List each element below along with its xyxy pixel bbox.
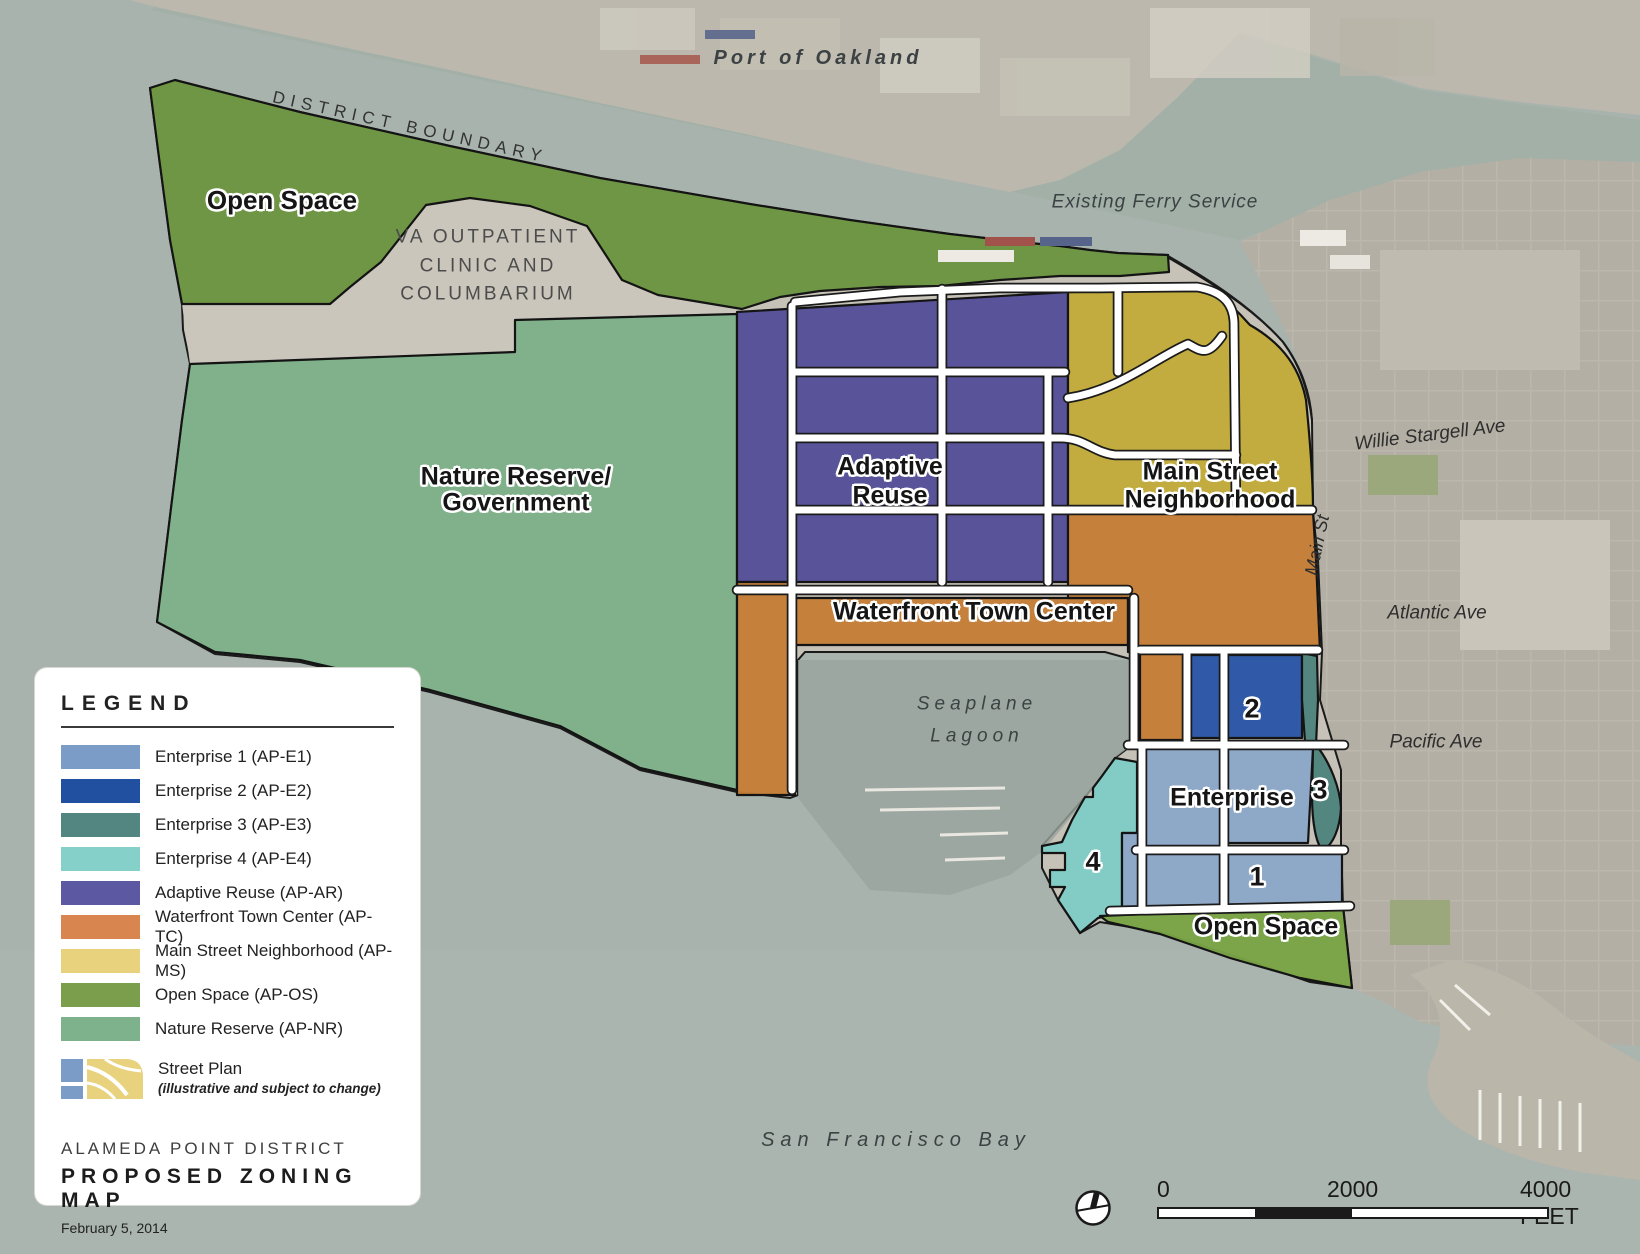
zoning-map-canvas: Port of Oakland DISTRICT BOUNDARY Open S… (0, 0, 1640, 1254)
label-va-line2: CLINIC AND (420, 257, 557, 276)
label-open-space-south: Open Space (1194, 915, 1339, 940)
label-enterprise-1: 1 (1249, 864, 1264, 891)
legend-swatch (61, 983, 140, 1007)
street-plan-icon (61, 1059, 143, 1099)
scale-tick-4000: 4000 FEET (1520, 1176, 1627, 1230)
label-main-street-line1: Main Street (1143, 460, 1278, 485)
label-main-street-line2: Neighborhood (1125, 488, 1296, 513)
label-port-of-oakland: Port of Oakland (714, 48, 923, 68)
legend-swatch (61, 915, 140, 939)
legend-swatch (61, 745, 140, 769)
legend-item-enterprise-1: Enterprise 1 (AP-E1) (61, 745, 394, 769)
label-enterprise: Enterprise (1170, 786, 1294, 811)
legend-swatch (61, 949, 140, 973)
legend-panel: LEGEND Enterprise 1 (AP-E1) Enterprise 2… (35, 668, 420, 1205)
label-lagoon: Lagoon (930, 727, 1023, 746)
container-row-red (985, 237, 1035, 246)
legend-swatch (61, 813, 140, 837)
legend-swatch (61, 1017, 140, 1041)
label-enterprise-4: 4 (1085, 849, 1100, 876)
legend-item-nature-reserve: Nature Reserve (AP-NR) (61, 1017, 394, 1041)
container-row-blue (1040, 237, 1092, 246)
scale-tick-0: 0 (1157, 1176, 1170, 1203)
legend-item-open-space: Open Space (AP-OS) (61, 983, 394, 1007)
legend-swatch (61, 779, 140, 803)
label-nature-reserve-line2: Government (442, 491, 589, 516)
street-plan-label: Street Plan (158, 1059, 381, 1079)
legend-item-main-street: Main Street Neighborhood (AP-MS) (61, 949, 394, 973)
title-block: ALAMEDA POINT DISTRICT PROPOSED ZONING M… (61, 1139, 394, 1236)
legend-divider (61, 726, 394, 728)
scale-bar-segment (1255, 1209, 1352, 1217)
ferry-pier (938, 250, 1014, 262)
legend-item-enterprise-2: Enterprise 2 (AP-E2) (61, 779, 394, 803)
zone-waterfront-west (737, 582, 795, 795)
legend-title: LEGEND (61, 692, 394, 716)
scale-bar-rule (1157, 1207, 1549, 1219)
label-adaptive-reuse-line2: Reuse (852, 484, 927, 509)
map-date: February 5, 2014 (61, 1220, 394, 1236)
legend-item-street-plan: Street Plan (illustrative and subject to… (61, 1059, 394, 1099)
district-name: ALAMEDA POINT DISTRICT (61, 1139, 394, 1159)
scale-bar: 0 2000 4000 FEET (1157, 1176, 1627, 1224)
legend-swatch (61, 847, 140, 871)
legend-item-adaptive-reuse: Adaptive Reuse (AP-AR) (61, 881, 394, 905)
north-arrow-icon (1074, 1189, 1112, 1227)
map-title: PROPOSED ZONING MAP (61, 1165, 394, 1213)
label-enterprise-2: 2 (1244, 696, 1259, 723)
scale-tick-2000: 2000 (1327, 1176, 1378, 1203)
label-pacific-ave: Pacific Ave (1390, 733, 1483, 752)
label-existing-ferry: Existing Ferry Service (1052, 193, 1259, 212)
label-atlantic-ave: Atlantic Ave (1387, 604, 1486, 623)
label-va-line3: COLUMBARIUM (400, 285, 576, 304)
zone-waterfront-subcol (1140, 652, 1183, 740)
legend-swatch (61, 881, 140, 905)
legend-item-enterprise-3: Enterprise 3 (AP-E3) (61, 813, 394, 837)
label-seaplane: Seaplane (917, 695, 1037, 714)
label-nature-reserve-line1: Nature Reserve/ (421, 465, 611, 490)
zone-enterprise-1 (1122, 748, 1342, 912)
label-adaptive-reuse-line1: Adaptive (837, 455, 943, 480)
label-va-line1: VA OUTPATIENT (396, 228, 581, 247)
street-plan-note: (illustrative and subject to change) (158, 1081, 381, 1096)
label-san-francisco-bay: San Francisco Bay (761, 1130, 1031, 1150)
label-waterfront-town-center: Waterfront Town Center (833, 600, 1115, 625)
label-open-space-north: Open Space (207, 187, 357, 213)
legend-item-enterprise-4: Enterprise 4 (AP-E4) (61, 847, 394, 871)
legend-item-waterfront: Waterfront Town Center (AP-TC) (61, 915, 394, 939)
label-enterprise-3: 3 (1312, 777, 1327, 804)
